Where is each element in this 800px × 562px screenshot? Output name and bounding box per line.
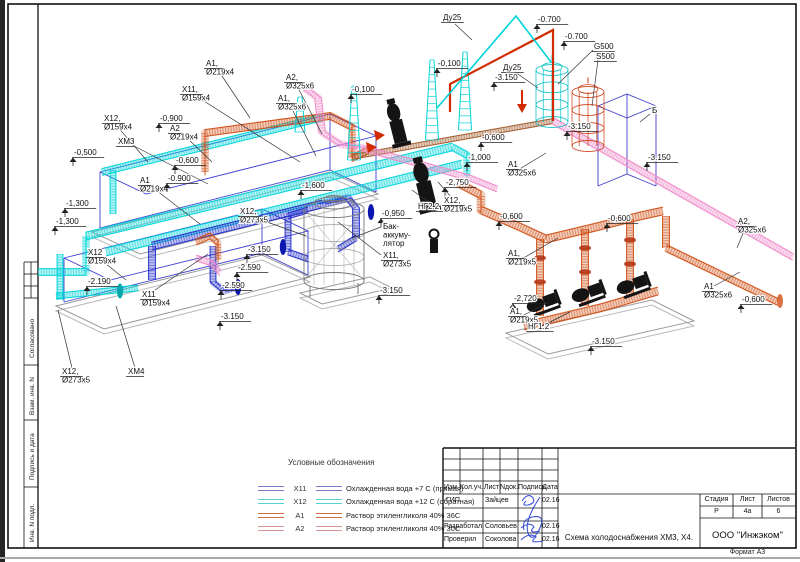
svg-text:-0,100: -0,100 — [352, 85, 375, 94]
tb-sheets-label: Листов — [762, 496, 795, 503]
tb-sheet-value: 4а — [733, 508, 762, 515]
format-note: Формат А3 — [700, 549, 795, 556]
legend-item-x11: Х11 Охлажденная вода +7 С (прямая) — [258, 483, 463, 493]
diagram-label: Ду25 — [441, 13, 464, 23]
svg-text:лятор: лятор — [383, 239, 405, 248]
svg-text:-0,600: -0,600 — [608, 214, 631, 223]
svg-text:-2,720: -2,720 — [514, 294, 537, 303]
side-stamp-label: Инв. N подл. — [29, 504, 36, 542]
tb-sheets-value: 6 — [762, 508, 795, 515]
svg-text:-3.150: -3.150 — [648, 153, 671, 162]
svg-text:Ду25: Ду25 — [443, 13, 462, 22]
tb-company: ООО "Инжэком" — [700, 530, 795, 541]
tb-date: 02.16 — [542, 523, 558, 530]
svg-text:S500: S500 — [596, 52, 615, 61]
diagram-label: -3.150 — [644, 153, 679, 171]
diagram-label: -0,500 — [70, 148, 105, 166]
svg-text:-2.590: -2.590 — [238, 263, 261, 272]
svg-text:-3.150: -3.150 — [380, 286, 403, 295]
legend-line-sample — [258, 486, 284, 491]
diagram-label: X11,Ø273x5 — [381, 251, 412, 269]
tb-name: Соколова — [485, 536, 518, 543]
scan-edge — [0, 557, 800, 559]
legend-line-sample — [258, 499, 284, 504]
diagram-label: -0,600 — [172, 156, 207, 174]
tb-name: Соловьев — [485, 523, 518, 530]
tb-col-izm: Изм. — [443, 484, 460, 491]
diagram-label: A1Ø219x4 — [138, 176, 169, 194]
legend-desc: Раствор этиленгликоля 40% 36С — [346, 511, 460, 520]
svg-text:-0.900: -0.900 — [168, 174, 191, 183]
tb-sheet-label: Лист — [733, 496, 762, 503]
svg-text:-3.150: -3.150 — [248, 245, 271, 254]
legend-line-sample — [316, 513, 342, 518]
tb-doc-title: Схема холодоснабжения ХМ3, Х4. — [560, 533, 698, 542]
svg-text:-0,950: -0,950 — [382, 209, 405, 218]
svg-text:ХМ4: ХМ4 — [128, 367, 145, 376]
diagram-label: A1,Ø219x4 — [204, 59, 235, 77]
tb-name: Зайцев — [485, 497, 518, 504]
diagram-label: A2,Ø325x6 — [284, 73, 315, 91]
side-stamp-label: Взам. инв. N — [29, 377, 36, 415]
diagram-label: -3.150 — [376, 286, 411, 304]
tb-role: ГИП — [446, 497, 483, 504]
tb-col-sign: Подпись — [518, 484, 542, 491]
leader-lines — [58, 24, 746, 371]
svg-text:-0,600: -0,600 — [742, 295, 765, 304]
diagram-label: -0,600 — [478, 133, 513, 151]
tb-date: 02.16 — [542, 536, 558, 543]
diagram-label: X11,Ø159x4 — [180, 85, 211, 103]
svg-text:-2,750: -2,750 — [446, 178, 469, 187]
tb-col-date: Дата — [542, 484, 558, 491]
legend-line-sample — [258, 526, 284, 531]
svg-text:-1,300: -1,300 — [56, 217, 79, 226]
legend-tag: А1 — [288, 511, 312, 520]
diagram-label: A2,Ø325x6 — [736, 217, 767, 235]
legend-line-sample — [316, 499, 342, 504]
svg-text:-1,300: -1,300 — [66, 199, 89, 208]
tb-stage-value: Р — [700, 508, 733, 515]
piping-scheme-canvas: Ду25-0.700-0.700G500S500Ду25-3.150-0,100… — [0, 0, 800, 562]
legend-line-sample — [316, 526, 342, 531]
signatures — [521, 496, 543, 542]
diagram-label: A2Ø219x4 — [168, 124, 199, 142]
diagram-label: Бак-аккуму-лятор — [383, 222, 411, 248]
diagram-label: X12,Ø219x5 — [442, 196, 473, 214]
svg-text:Б: Б — [652, 106, 657, 115]
diagram-label: ХМ3 — [116, 137, 135, 147]
svg-text:Ду25: Ду25 — [503, 63, 522, 72]
diagram-label: -1,300 — [52, 217, 87, 235]
diagram-label: Ду25 — [501, 63, 524, 73]
diagram-label: A1Ø325x6 — [506, 160, 537, 178]
side-stamp-label: Подпись и дата — [29, 433, 36, 480]
tb-date: 02.16 — [542, 497, 558, 504]
side-stamp-label: Согласовано — [29, 319, 36, 358]
svg-text:ХМ3: ХМ3 — [118, 137, 135, 146]
tb-col-kol: Кол.уч. — [460, 484, 483, 491]
svg-text:-3.150: -3.150 — [221, 312, 244, 321]
legend-tag: Х11 — [288, 484, 312, 493]
svg-text:НГ1.2: НГ1.2 — [528, 322, 550, 331]
legend-item-x12: Х12 Охлажденная вода +12 С (обратная) — [258, 496, 475, 506]
svg-text:-3.150: -3.150 — [495, 73, 518, 82]
tb-role: Проверил — [444, 536, 483, 543]
legend-tag: А2 — [288, 524, 312, 533]
diagram-label: -0.900 — [164, 174, 199, 192]
svg-text:-0,600: -0,600 — [482, 133, 505, 142]
svg-text:-2.190: -2.190 — [88, 277, 111, 286]
svg-text:-0,900: -0,900 — [160, 114, 183, 123]
legend-title: Условные обозначения — [288, 458, 374, 467]
svg-text:-0,600: -0,600 — [500, 212, 523, 221]
diagram-label: Б — [652, 106, 657, 115]
svg-text:-0,600: -0,600 — [176, 156, 199, 165]
diagram-label: -0,100 — [348, 85, 383, 103]
svg-text:-1,000: -1,000 — [468, 153, 491, 162]
legend-item-a1: А1 Раствор этиленгликоля 40% 36С — [258, 510, 460, 520]
tb-col-list: Лист — [483, 484, 500, 491]
scan-edge — [0, 0, 5, 562]
diagram-label: G500 — [592, 42, 615, 52]
svg-text:-3.150: -3.150 — [568, 122, 591, 131]
tb-col-ndok: Nдок. — [500, 484, 518, 491]
diagram-label: X12,Ø273x5 — [60, 367, 91, 385]
side-stamp: Согласовано Взам. инв. N Подпись и дата … — [29, 319, 36, 542]
svg-text:-0.700: -0.700 — [565, 32, 588, 41]
svg-text:-2.590: -2.590 — [222, 281, 245, 290]
svg-text:НГ2.2: НГ2.2 — [418, 202, 440, 211]
diagram-label: X12,Ø159x4 — [102, 114, 133, 132]
legend-line-sample — [316, 486, 342, 491]
svg-text:G500: G500 — [594, 42, 614, 51]
svg-text:-0,500: -0,500 — [74, 148, 97, 157]
legend-item-a2: А2 Раствор этиленгликоля 40% 30С — [258, 523, 460, 533]
diagram-label: -0,100 — [434, 59, 469, 77]
svg-text:-0,100: -0,100 — [438, 59, 461, 68]
svg-text:-0.700: -0.700 — [538, 15, 561, 24]
diagram-label: A1,Ø219x5 — [506, 249, 537, 267]
tb-role: Разработал — [444, 523, 483, 530]
diagram-label: X11Ø159x4 — [140, 290, 171, 308]
diagram-label: -0.700 — [561, 32, 596, 50]
svg-text:-3.150: -3.150 — [592, 337, 615, 346]
diagram-label: ХМ4 — [126, 367, 145, 377]
diagram-labels: Ду25-0.700-0.700G500S500Ду25-3.150-0,100… — [52, 13, 773, 385]
legend-tag: Х12 — [288, 497, 312, 506]
diagram-label: -3.150 — [217, 312, 252, 330]
diagram-label: -2.590 — [234, 263, 269, 281]
tb-stage-label: Стадия — [700, 496, 733, 503]
pump — [381, 97, 411, 149]
svg-text:-1,600: -1,600 — [302, 181, 325, 190]
legend-line-sample — [258, 513, 284, 518]
diagram-label: -1,300 — [62, 199, 97, 217]
valve — [430, 230, 439, 254]
diagram-label: S500 — [594, 52, 617, 62]
drawing-sheet: Ду25-0.700-0.700G500S500Ду25-3.150-0,100… — [0, 0, 800, 562]
